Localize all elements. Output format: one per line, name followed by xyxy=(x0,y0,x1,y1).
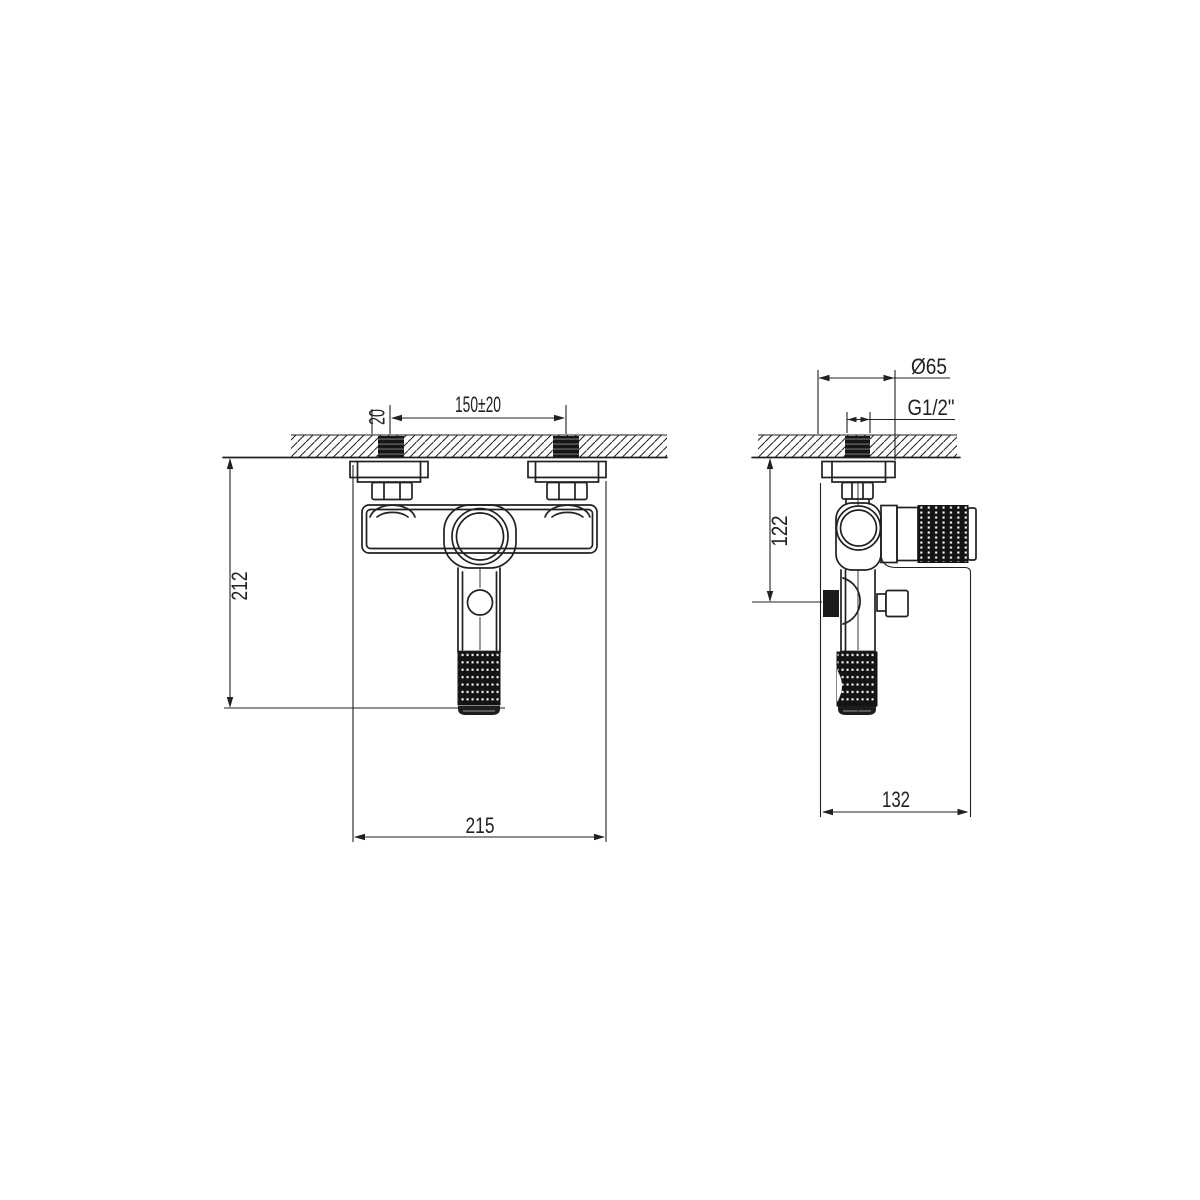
mounting-nut-side xyxy=(842,482,873,505)
dim-outlet-drop: 122 xyxy=(752,458,822,602)
lever-grip-front xyxy=(458,652,500,715)
body-outline-side xyxy=(881,549,971,817)
temp-handle-side xyxy=(881,506,976,563)
dim-stud-spacing-label: 150±20 xyxy=(455,392,501,417)
right-flange xyxy=(528,462,606,483)
valve-housing-side xyxy=(836,503,881,570)
technical-drawing: 20 150±20 212 215 xyxy=(0,0,1200,1200)
wall-hatch-front xyxy=(291,435,667,457)
right-wall-stud xyxy=(553,436,579,457)
wall-side-knob xyxy=(823,590,839,617)
stem-button xyxy=(468,590,493,615)
wall-stud-side xyxy=(845,436,870,457)
lever-stem-front xyxy=(458,568,500,652)
side-view: Ø65 G1/2" 122 132 xyxy=(752,354,976,817)
cartridge-housing-front xyxy=(444,505,516,568)
dim-thread-size: G1/2" xyxy=(847,395,955,433)
valve-circle-inner xyxy=(841,510,877,546)
dim-drop-height-label: 212 xyxy=(227,572,252,601)
flange-side xyxy=(822,462,895,483)
temp-handle-knurl xyxy=(918,506,968,563)
drawing-canvas: 20 150±20 212 215 xyxy=(0,0,1200,1200)
front-view: 20 150±20 212 215 xyxy=(223,392,667,842)
dim-outlet-drop-label: 122 xyxy=(767,516,792,547)
dim-overall-depth-label: 132 xyxy=(882,787,910,812)
dim-overall-width-label: 215 xyxy=(466,813,495,838)
left-wall-stud xyxy=(378,436,404,457)
wall-section-front xyxy=(223,435,667,458)
cartridge-circle-outer xyxy=(452,509,508,565)
valve-circle-outer xyxy=(837,506,881,550)
inlet-domes xyxy=(370,505,590,517)
diverter-knob-side xyxy=(877,591,908,617)
left-flange xyxy=(350,462,428,483)
lever-grip-side xyxy=(837,652,877,715)
faucet-front xyxy=(350,462,606,716)
dim-thread-size-label: G1/2" xyxy=(908,395,955,420)
dim-stud-offset: 20 xyxy=(365,405,391,434)
dim-stud-offset-label: 20 xyxy=(365,409,390,425)
right-mounting-nut xyxy=(547,483,587,500)
dim-flange-diameter-label: Ø65 xyxy=(911,354,947,379)
left-mounting-nut xyxy=(372,483,412,500)
dim-stud-spacing: 150±20 xyxy=(391,392,566,434)
faucet-side xyxy=(822,462,976,818)
lever-stem-side xyxy=(841,570,875,652)
